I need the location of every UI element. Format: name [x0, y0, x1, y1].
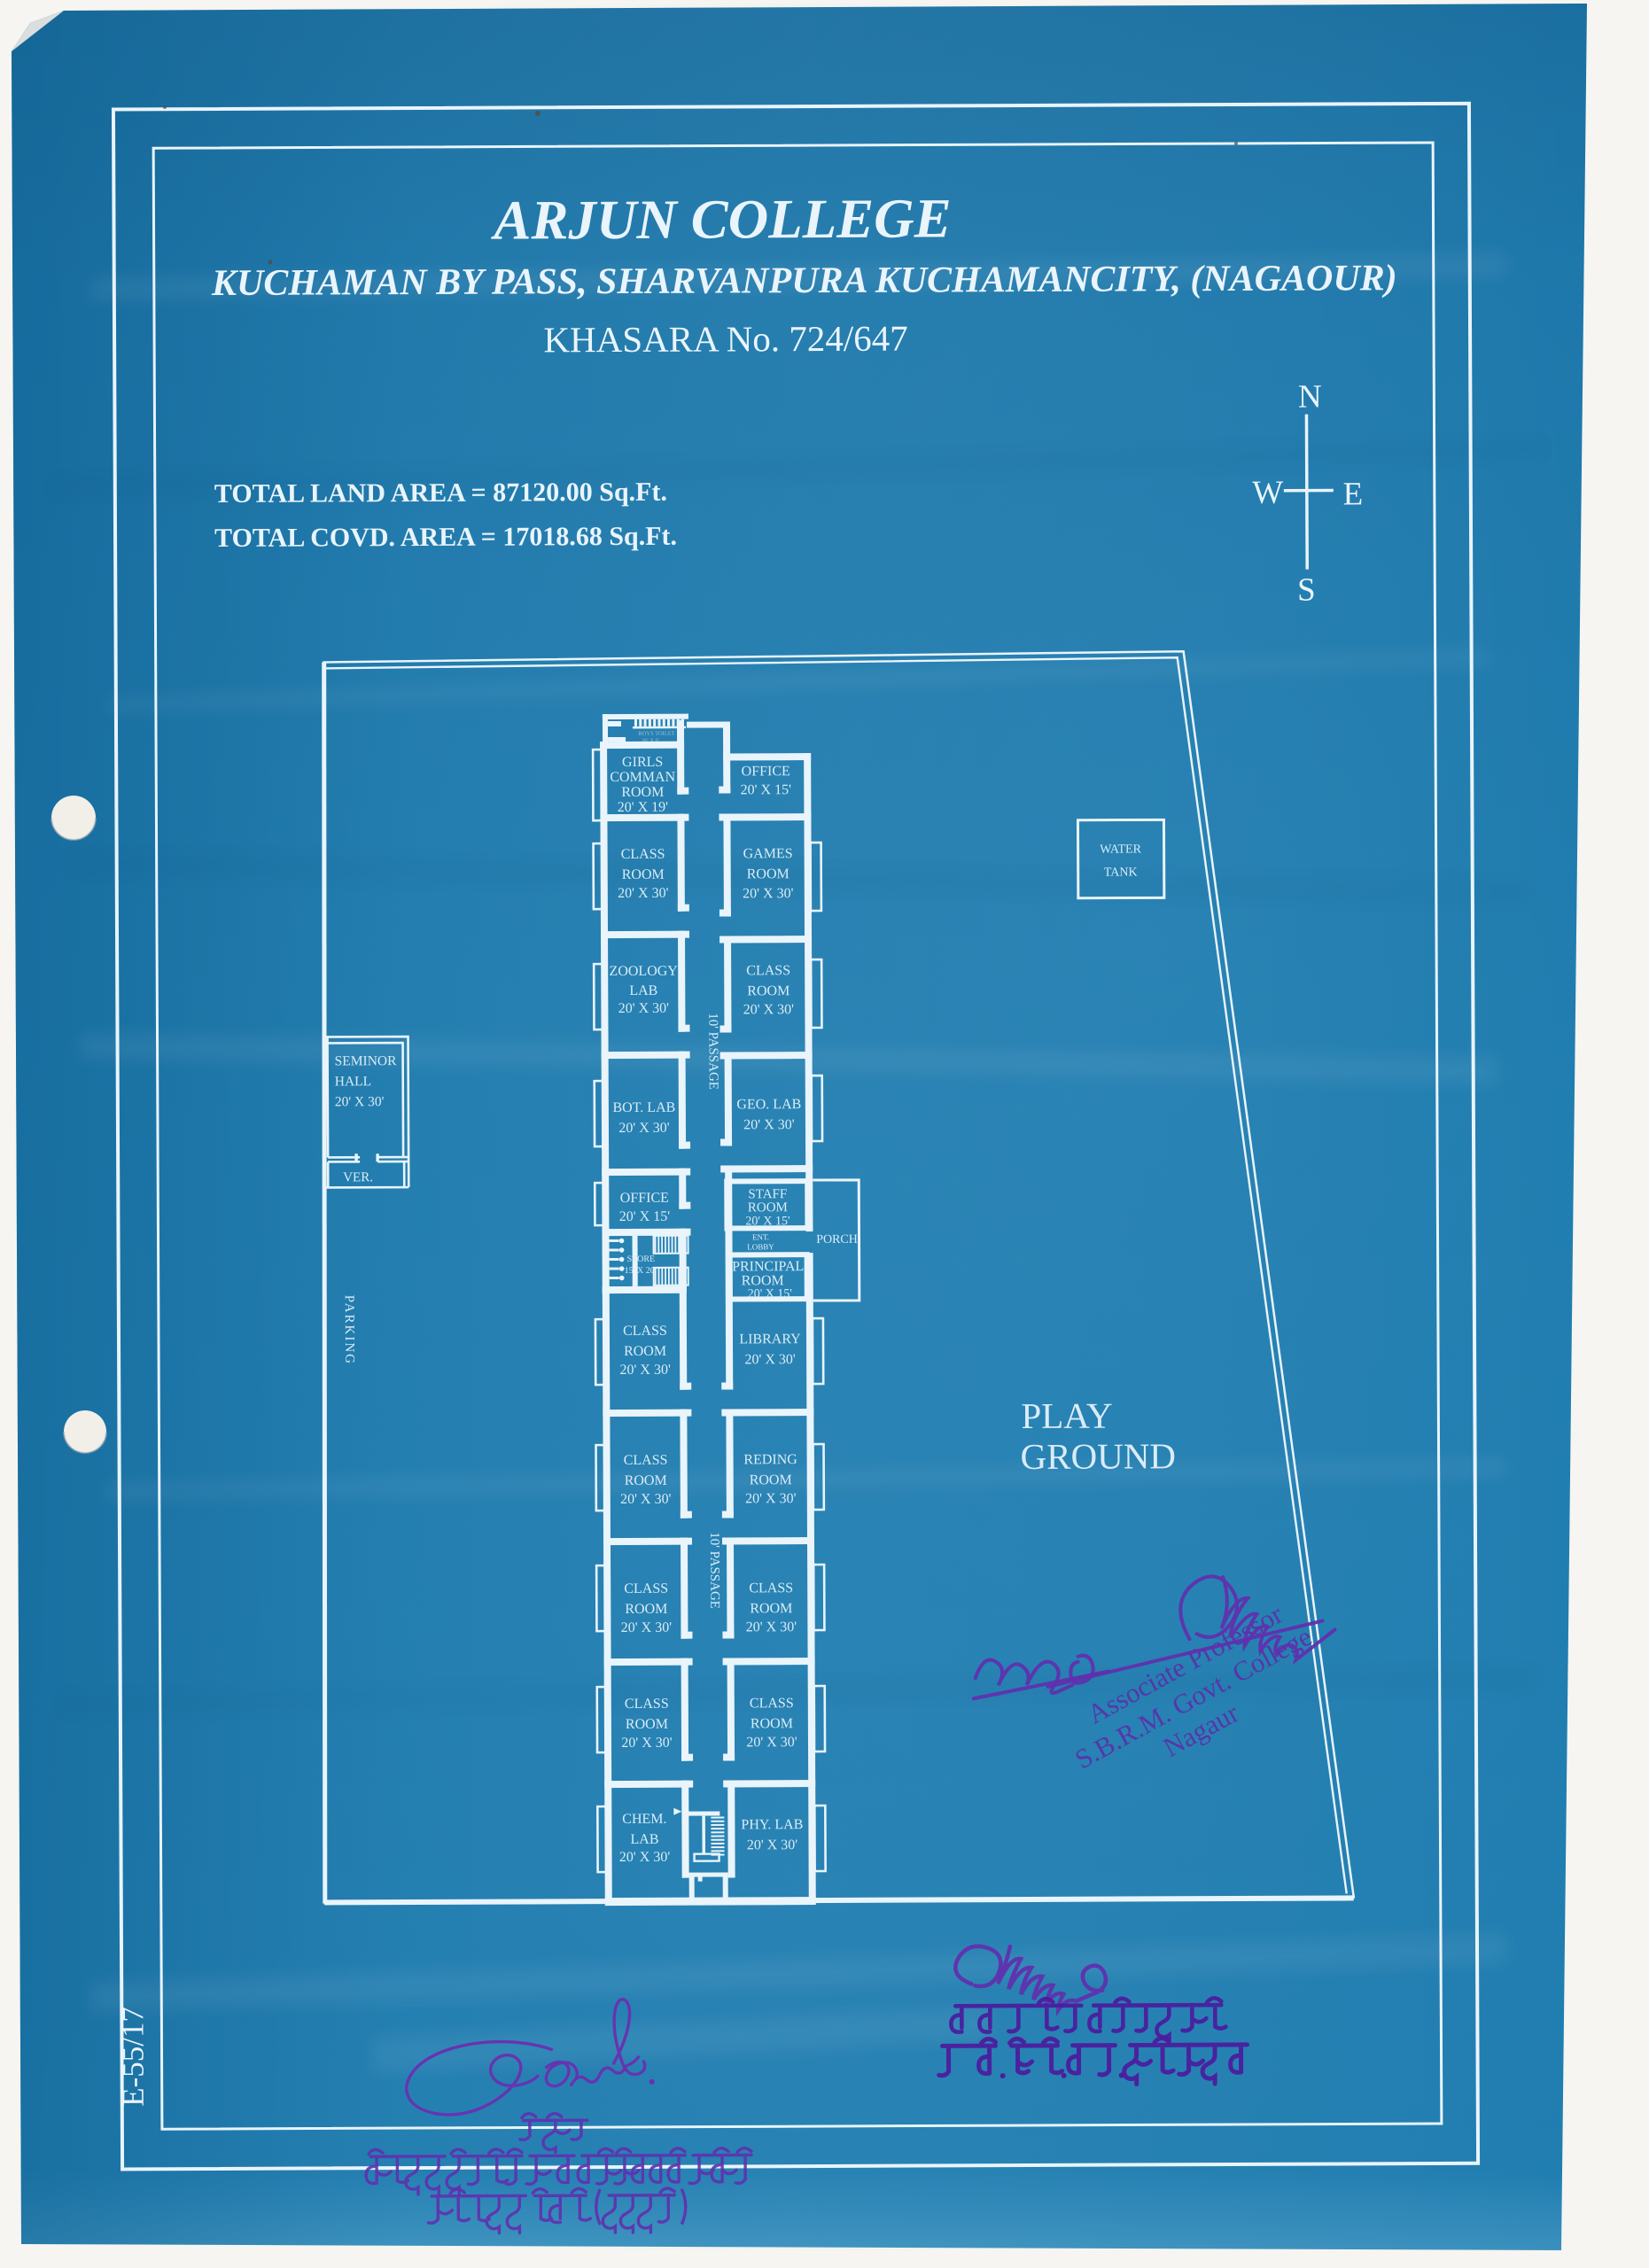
- svg-text:CLASS: CLASS: [624, 1453, 668, 1468]
- svg-text:KHASARA No. 724/647: KHASARA No. 724/647: [543, 318, 907, 361]
- svg-text:20' X 30': 20' X 30': [744, 1352, 796, 1367]
- svg-text:20' X 15': 20' X 15': [745, 1215, 789, 1228]
- svg-text:20' X 30': 20' X 30': [335, 1094, 385, 1109]
- svg-text:20' X 30': 20' X 30': [743, 886, 794, 901]
- svg-text:20' X 30': 20' X 30': [619, 1850, 671, 1865]
- svg-text:PLAY: PLAY: [1021, 1395, 1113, 1436]
- svg-text:ROOM: ROOM: [747, 983, 789, 998]
- svg-text:PARKING: PARKING: [342, 1295, 356, 1365]
- svg-text:20' X 30': 20' X 30': [745, 1491, 797, 1506]
- svg-text:OFFICE: OFFICE: [620, 1191, 669, 1206]
- svg-text:KUCHAMAN BY PASS, SHARVANPURA: KUCHAMAN BY PASS, SHARVANPURA KUCHAMANCI…: [211, 258, 1397, 304]
- svg-text:20' X 30': 20' X 30': [620, 1492, 672, 1507]
- svg-text:GEO. LAB: GEO. LAB: [736, 1097, 801, 1112]
- svg-text:S: S: [1297, 572, 1316, 609]
- svg-text:TOTAL COVD. AREA = 17018.68 Sq: TOTAL COVD. AREA = 17018.68 Sq.Ft.: [214, 522, 677, 553]
- svg-text:ROOM: ROOM: [621, 785, 664, 800]
- svg-text:ROOM: ROOM: [742, 1273, 784, 1288]
- svg-text:CHEM.: CHEM.: [622, 1812, 666, 1827]
- svg-text:VER.: VER.: [343, 1170, 373, 1184]
- svg-text:BOYS TOILET: BOYS TOILET: [638, 731, 675, 737]
- svg-text:ROOM: ROOM: [747, 866, 789, 882]
- svg-text:CLASS: CLASS: [621, 847, 665, 862]
- svg-text:ROOM: ROOM: [625, 1602, 667, 1617]
- svg-text:STAFF: STAFF: [748, 1187, 787, 1201]
- svg-text:20' X 30': 20' X 30': [621, 1736, 673, 1751]
- svg-text:20' X 30': 20' X 30': [619, 1363, 671, 1378]
- svg-text:LAB: LAB: [630, 1832, 658, 1847]
- svg-text:20' X 30': 20' X 30': [746, 1619, 797, 1635]
- svg-text:CLASS: CLASS: [624, 1581, 668, 1596]
- svg-text:20' X 15': 20' X 15': [619, 1209, 671, 1224]
- svg-text:20' X 15': 20' X 15': [748, 1287, 792, 1301]
- svg-text:10' PASSAGE: 10' PASSAGE: [705, 1013, 719, 1090]
- svg-text:ROOM: ROOM: [751, 1716, 793, 1731]
- svg-text:20' X 30': 20' X 30': [743, 1117, 795, 1132]
- svg-text:ROOM: ROOM: [750, 1472, 792, 1487]
- svg-text:W: W: [1252, 475, 1283, 511]
- svg-text:ROOM: ROOM: [748, 1200, 788, 1215]
- svg-text:BOT. LAB: BOT. LAB: [612, 1100, 675, 1115]
- svg-text:PRINCIPAL: PRINCIPAL: [732, 1259, 804, 1274]
- svg-text:PORCH: PORCH: [816, 1233, 858, 1247]
- svg-text:GIRLS: GIRLS: [622, 755, 663, 770]
- svg-text:LAB: LAB: [629, 983, 657, 998]
- svg-text:20' X 15': 20' X 15': [741, 782, 792, 797]
- svg-text:LOBBY: LOBBY: [747, 1242, 774, 1251]
- svg-text:GAMES: GAMES: [743, 846, 793, 861]
- svg-text:ROOM: ROOM: [626, 1717, 668, 1732]
- svg-text:N: N: [1298, 379, 1322, 416]
- svg-text:ARJUN COLLEGE: ARJUN COLLEGE: [490, 187, 952, 251]
- svg-text:15' X 20': 15' X 20': [625, 1266, 657, 1276]
- svg-text:CLASS: CLASS: [623, 1324, 667, 1339]
- svg-text:CLASS: CLASS: [750, 1696, 794, 1711]
- svg-text:20' X 30': 20' X 30': [743, 1002, 795, 1017]
- svg-text:TANK: TANK: [1104, 866, 1138, 879]
- svg-text:ROOM: ROOM: [624, 1344, 666, 1359]
- svg-text:ROOM: ROOM: [625, 1473, 667, 1488]
- svg-text:E-55/17: E-55/17: [115, 2007, 150, 2107]
- svg-text:STORE: STORE: [627, 1254, 656, 1264]
- svg-text:REDING: REDING: [743, 1452, 797, 1467]
- svg-text:ZOOLOGY: ZOOLOGY: [609, 964, 678, 979]
- svg-text:ENT.: ENT.: [752, 1232, 769, 1241]
- svg-text:20' X 30': 20' X 30': [618, 886, 669, 901]
- svg-text:GROUND: GROUND: [1020, 1435, 1176, 1477]
- svg-text:20' X 30': 20' X 30': [747, 1837, 798, 1852]
- svg-text:PHY. LAB: PHY. LAB: [741, 1817, 803, 1832]
- svg-text:COMMAN: COMMAN: [610, 770, 675, 785]
- svg-text:20' X 19': 20' X 19': [618, 800, 669, 815]
- svg-text:E: E: [1342, 476, 1363, 512]
- svg-text:20' X 30': 20' X 30': [618, 1001, 670, 1016]
- svg-text:WATER: WATER: [1100, 843, 1141, 856]
- svg-text:CLASS: CLASS: [746, 963, 790, 978]
- svg-text:ROOM: ROOM: [622, 867, 665, 882]
- svg-text:SEMINOR: SEMINOR: [335, 1053, 397, 1068]
- svg-text:HALL: HALL: [335, 1074, 371, 1089]
- svg-text:TOTAL LAND AREA = 87120.00 Sq.: TOTAL LAND AREA = 87120.00 Sq.Ft.: [214, 478, 667, 509]
- svg-text:20' X 30': 20' X 30': [618, 1121, 670, 1136]
- svg-text:ROOM: ROOM: [750, 1601, 792, 1616]
- svg-text:CLASS: CLASS: [625, 1697, 669, 1712]
- svg-text:20' X 30': 20' X 30': [621, 1620, 673, 1635]
- svg-text:10' PASSAGE: 10' PASSAGE: [707, 1532, 721, 1609]
- svg-text:20' X 30': 20' X 30': [746, 1735, 797, 1750]
- svg-text:CLASS: CLASS: [749, 1581, 793, 1596]
- svg-text:OFFICE: OFFICE: [742, 764, 790, 779]
- svg-text:LIBRARY: LIBRARY: [739, 1332, 801, 1347]
